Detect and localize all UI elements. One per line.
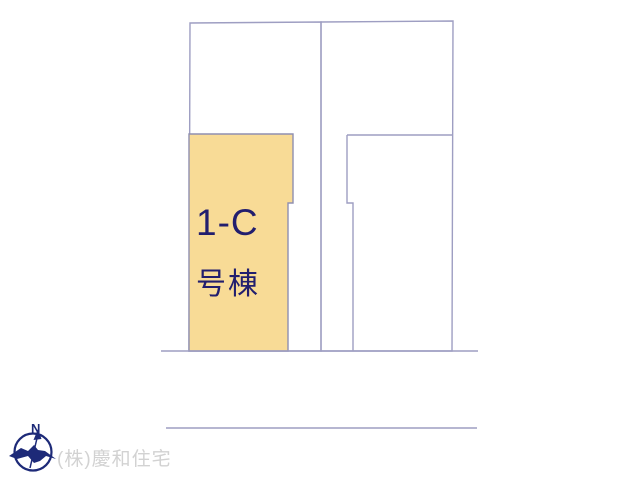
right-parcel-outline <box>321 21 453 351</box>
compass-north-label: N <box>31 421 40 436</box>
company-name-text: (株)慶和住宅 <box>57 449 172 470</box>
right-inner-side-line <box>347 135 353 351</box>
lot-1c-highlight <box>189 134 293 351</box>
site-plan-drawing <box>0 0 640 480</box>
compass-north-icon: N <box>7 419 61 477</box>
site-plan-page: 1-C 号棟 N (株)慶和住宅 <box>0 0 640 480</box>
